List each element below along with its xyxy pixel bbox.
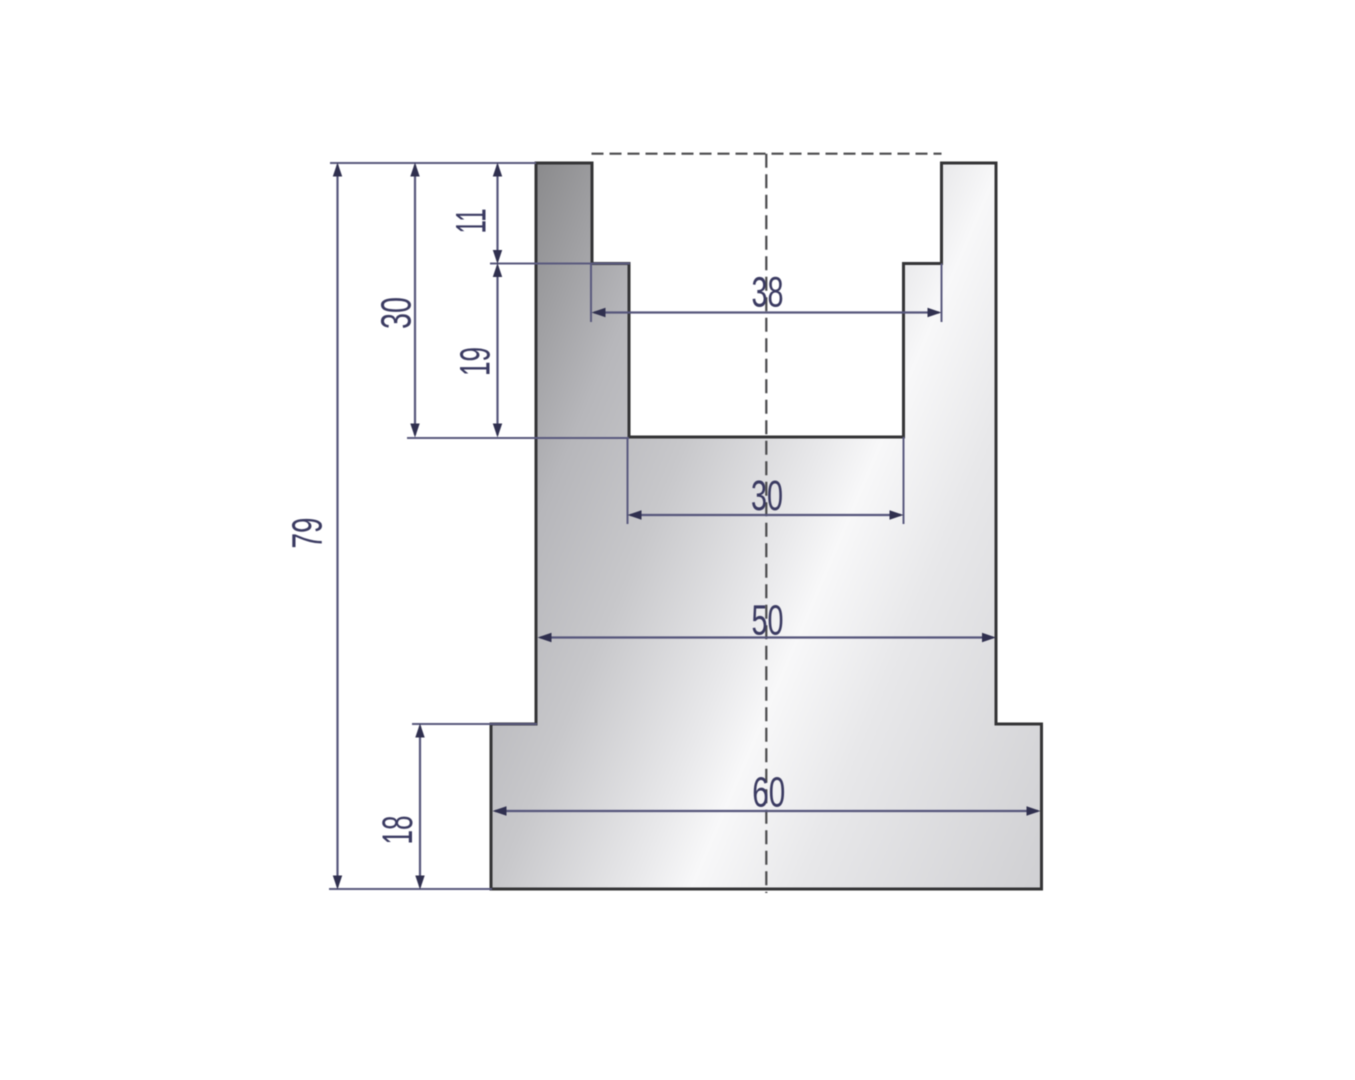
svg-text:30: 30 — [751, 473, 783, 520]
svg-text:19: 19 — [453, 347, 500, 376]
svg-text:50: 50 — [752, 598, 784, 645]
svg-text:60: 60 — [752, 769, 785, 816]
svg-text:30: 30 — [374, 297, 421, 329]
svg-text:11: 11 — [449, 209, 496, 234]
svg-text:38: 38 — [752, 270, 784, 317]
svg-text:79: 79 — [285, 518, 332, 549]
svg-text:18: 18 — [375, 816, 422, 845]
